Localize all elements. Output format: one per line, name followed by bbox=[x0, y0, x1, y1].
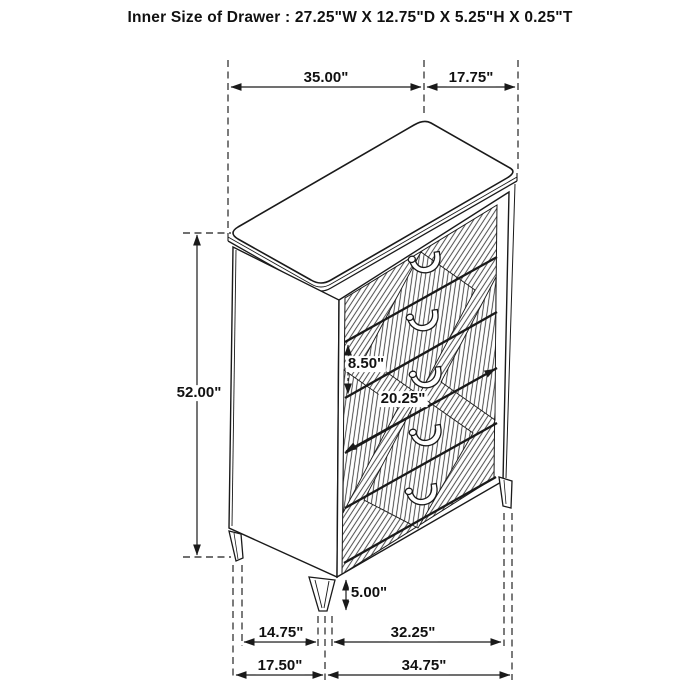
dim-label-leg-height: 5.00" bbox=[349, 585, 389, 601]
dim-label-base-depth: 17.50" bbox=[256, 658, 305, 674]
dim-label-drawer-face-diagonal: 20.25" bbox=[379, 391, 428, 407]
side-panel bbox=[229, 247, 339, 577]
leg bbox=[309, 577, 335, 611]
dim-label-drawer-front-height: 8.50" bbox=[346, 356, 386, 372]
leg bbox=[499, 477, 512, 508]
dim-label-leg-inset-depth: 14.75" bbox=[257, 625, 306, 641]
dim-label-leg-span-width: 32.25" bbox=[389, 625, 438, 641]
dim-label-base-width: 34.75" bbox=[400, 658, 449, 674]
dim-label-top-depth: 17.75" bbox=[447, 70, 496, 86]
dim-label-overall-height: 52.00" bbox=[175, 385, 224, 401]
product-dimension-diagram: Inner Size of Drawer : 27.25"W X 12.75"D… bbox=[0, 0, 700, 700]
dim-label-top-width: 35.00" bbox=[302, 70, 351, 86]
drawing-title: Inner Size of Drawer : 27.25"W X 12.75"D… bbox=[0, 9, 700, 27]
